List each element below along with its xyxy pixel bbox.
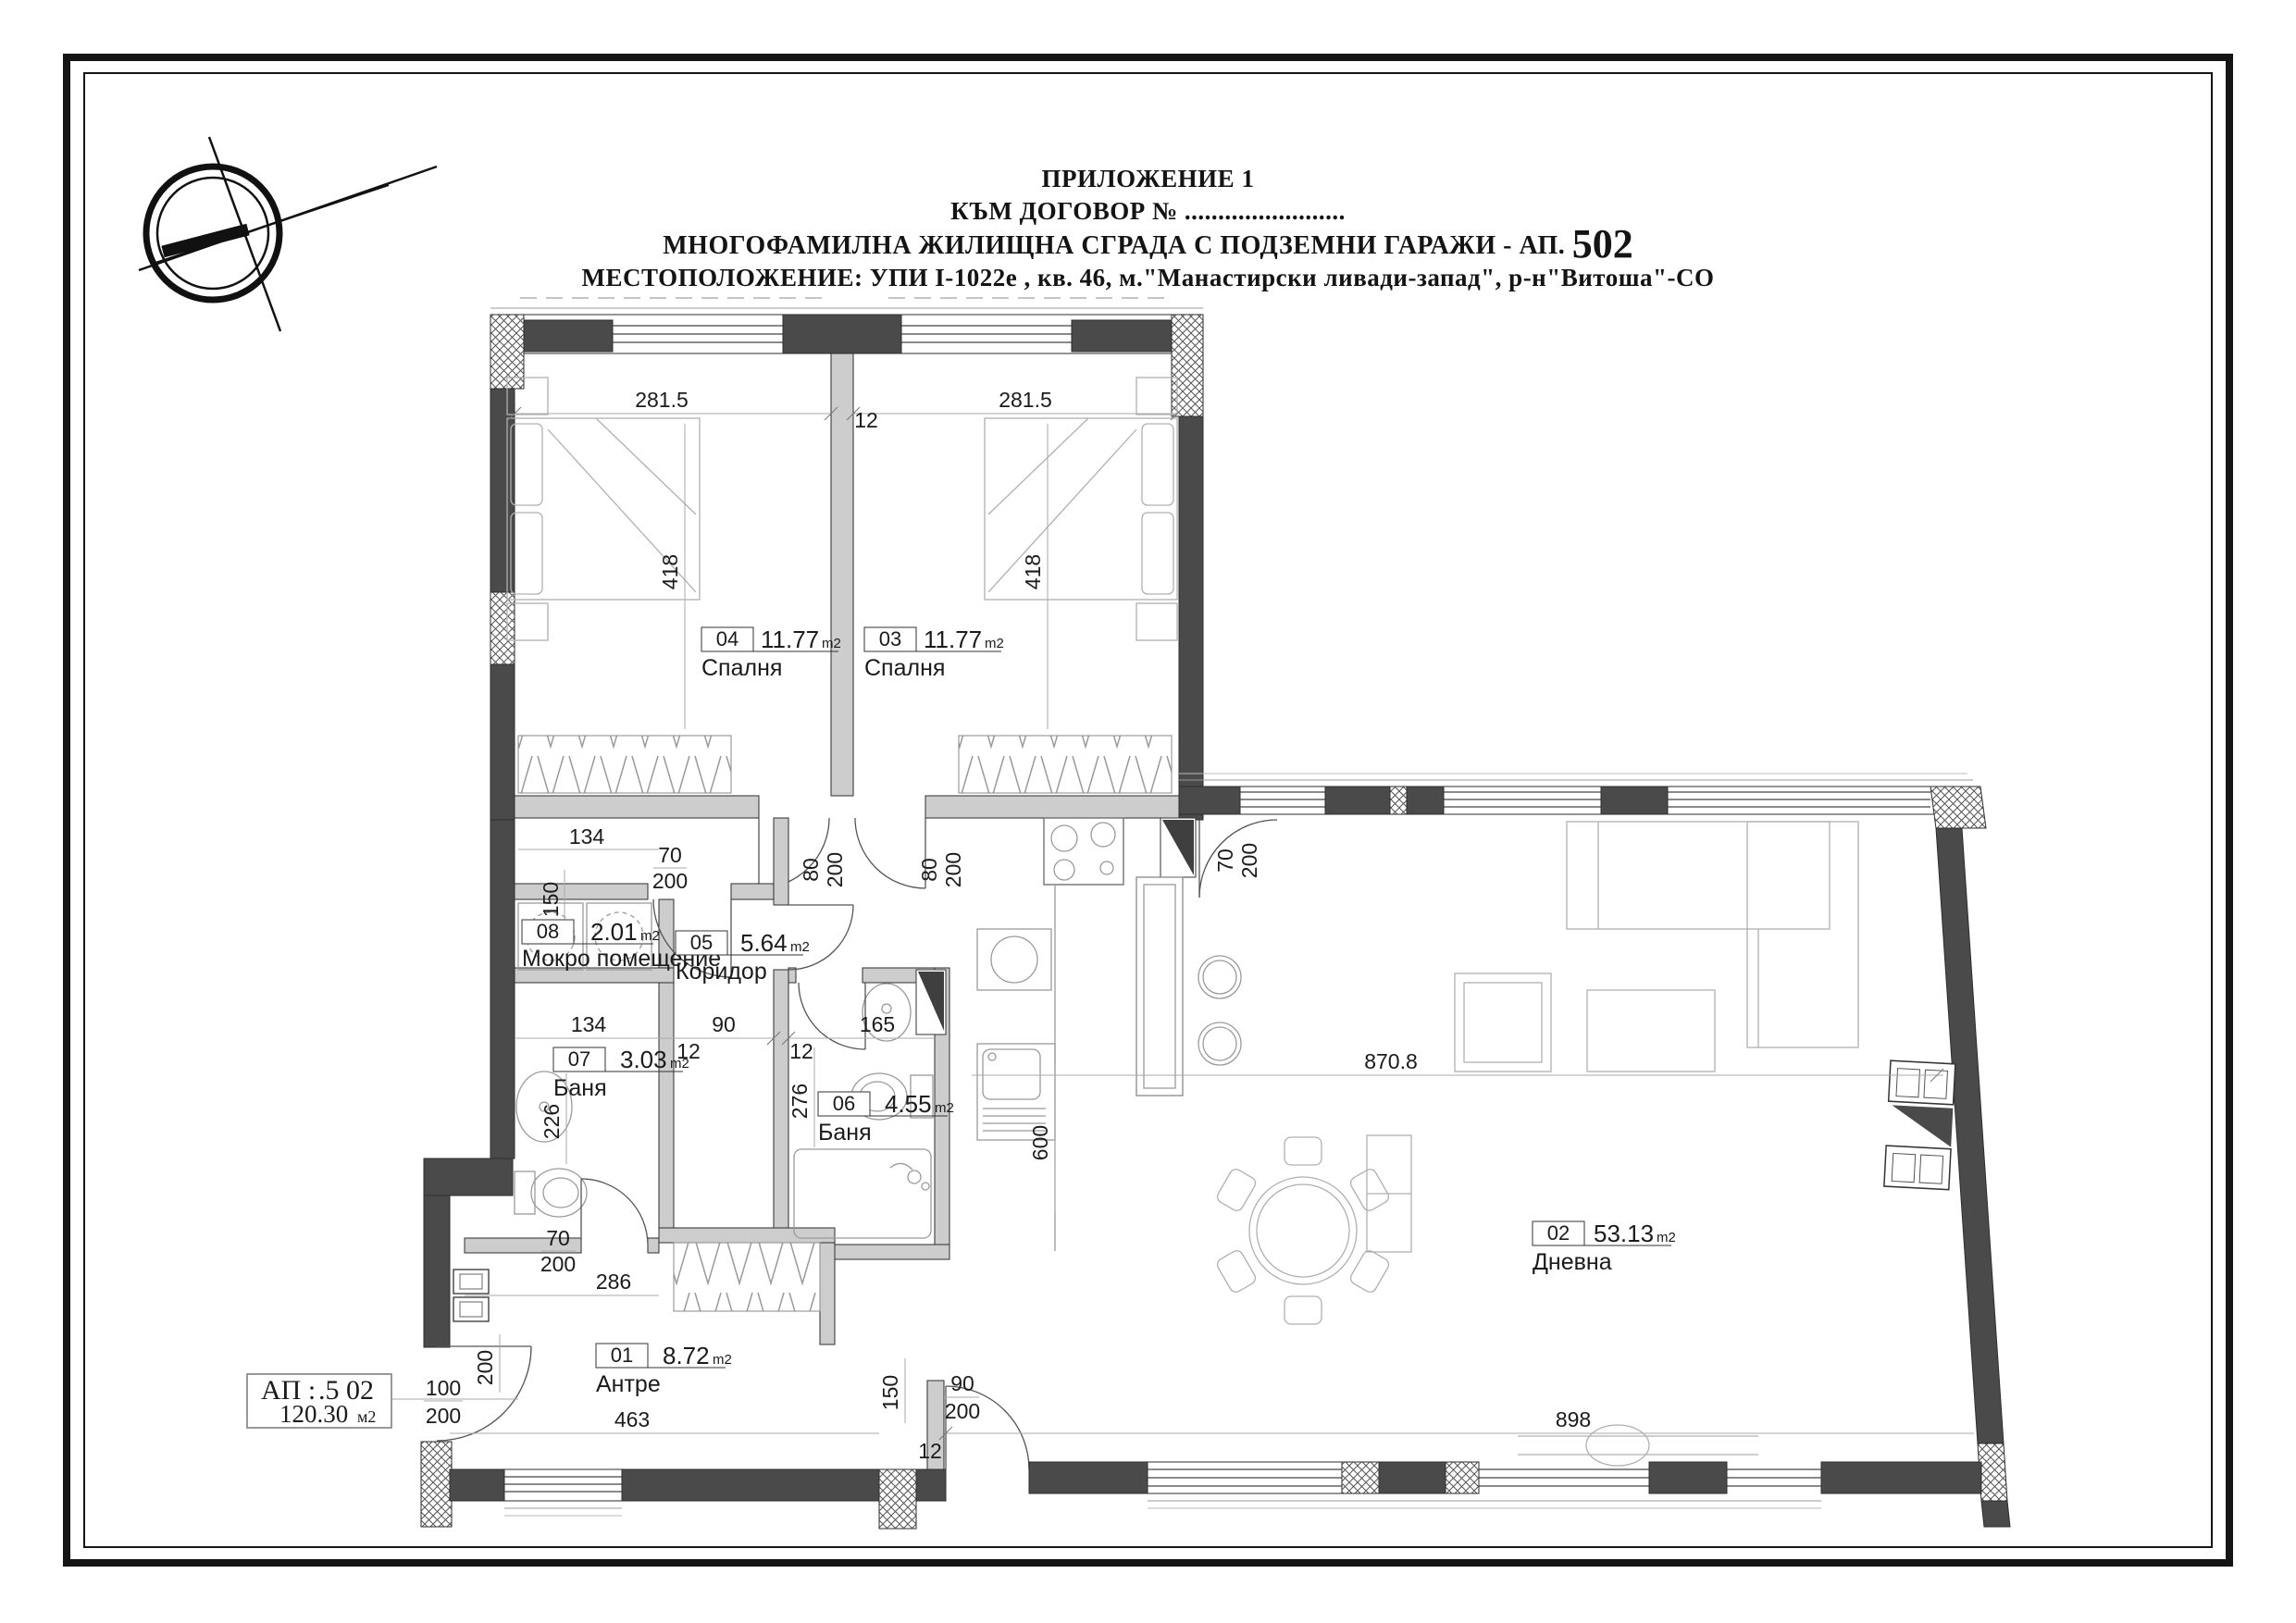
svg-text:01: 01 — [611, 1344, 633, 1367]
bed-room4 — [507, 378, 700, 640]
walls-middle — [421, 818, 949, 1527]
svg-text:07: 07 — [568, 1047, 590, 1071]
door-bath7 — [581, 1179, 648, 1245]
dim-lobby-150: 150 — [539, 882, 563, 917]
room-label-01: 01 8.72 m2 Антре — [596, 1342, 732, 1397]
dim-stub-12: 12 — [918, 1439, 942, 1463]
svg-text:2.01: 2.01 — [590, 918, 638, 946]
svg-text:53.13: 53.13 — [1594, 1220, 1654, 1247]
north-compass-icon — [139, 137, 437, 331]
svg-text:5.64: 5.64 — [740, 929, 788, 957]
dim-bed4-depth: 418 — [658, 554, 682, 589]
svg-text:03: 03 — [879, 627, 901, 650]
wardrobe-antre — [674, 1243, 820, 1311]
dim-bed3-width: 281.5 — [999, 388, 1052, 412]
dim-door-bed3: 80 200 — [917, 852, 965, 887]
room-label-03: 03 11.77 m2 Спалня — [864, 626, 1004, 681]
svg-text:02: 02 — [1547, 1221, 1570, 1245]
dim-entry-h: 200 — [426, 1404, 461, 1428]
dim-wall-12b: 12 — [789, 1039, 813, 1063]
dim-bath7-286: 286 — [596, 1270, 631, 1294]
shaft-bath6 — [916, 970, 946, 1035]
title-area-unit: м2 — [357, 1407, 376, 1426]
svg-text:Коридор: Коридор — [676, 959, 767, 985]
dim-bed4-width: 281.5 — [635, 388, 689, 412]
svg-text:Спалня: Спалня — [864, 655, 945, 681]
dim-livdoor-w: 90 — [950, 1371, 974, 1395]
svg-text:m2: m2 — [985, 636, 1004, 651]
svg-text:80: 80 — [799, 858, 823, 882]
dim-bath7-226: 226 — [540, 1104, 564, 1139]
daybed-right-wall — [1884, 1060, 1955, 1189]
dim-kitchen-door: 70 200 — [1213, 843, 1261, 878]
svg-text:m2: m2 — [670, 1056, 689, 1072]
svg-text:04: 04 — [716, 627, 738, 650]
dim-bath7-134: 134 — [571, 1012, 607, 1036]
svg-text:Дневна: Дневна — [1533, 1249, 1612, 1275]
dim-antre-463: 463 — [614, 1407, 650, 1431]
kitchen-fixtures — [977, 818, 1241, 1251]
dim-bath6-165: 165 — [860, 1012, 895, 1036]
wardrobe-bed3 — [959, 736, 1172, 793]
shaft-kitchen — [1160, 818, 1196, 877]
svg-text:11.77: 11.77 — [924, 626, 982, 653]
svg-text:m2: m2 — [713, 1352, 732, 1368]
svg-text:70: 70 — [1213, 849, 1237, 873]
svg-text:200: 200 — [1237, 843, 1261, 878]
floor-plan-svg: 281.5 12 281.5 418 418 80 200 80 200 134… — [0, 0, 2296, 1623]
svg-text:Спалня: Спалня — [701, 655, 782, 681]
svg-text:m2: m2 — [822, 636, 841, 651]
dim-bath6-276: 276 — [788, 1084, 812, 1119]
bed-room3 — [985, 378, 1177, 640]
drawing-sheet: ПРИЛОЖЕНИЕ 1 КЪМ ДОГОВОР № .............… — [0, 0, 2296, 1623]
dim-partition: 12 — [854, 408, 878, 432]
dining-set — [1215, 1135, 1411, 1324]
dim-bed3-depth: 418 — [1021, 554, 1045, 589]
svg-text:m2: m2 — [1657, 1230, 1676, 1245]
svg-text:8.72: 8.72 — [663, 1342, 710, 1369]
svg-text:4.55: 4.55 — [885, 1090, 932, 1118]
svg-text:06: 06 — [833, 1092, 855, 1115]
svg-text:m2: m2 — [640, 928, 660, 944]
dim-living-898: 898 — [1556, 1407, 1591, 1431]
dim-bath7door-h: 200 — [540, 1252, 576, 1276]
svg-text:m2: m2 — [790, 939, 810, 955]
svg-text:3.03: 3.03 — [620, 1046, 667, 1073]
svg-text:05: 05 — [690, 931, 713, 954]
svg-text:Антре: Антре — [596, 1371, 661, 1397]
dim-kitchen-600: 600 — [1028, 1125, 1052, 1160]
dim-door-bed4: 80 200 — [799, 852, 847, 887]
dim-lobby-134: 134 — [569, 824, 605, 849]
dim-living-870: 870.8 — [1364, 1049, 1418, 1073]
svg-text:Баня: Баня — [818, 1120, 872, 1146]
svg-text:Баня: Баня — [553, 1075, 607, 1101]
door-bed3 — [855, 818, 925, 888]
svg-text:200: 200 — [823, 852, 847, 887]
dim-livdoor-h: 200 — [945, 1399, 980, 1423]
dim-antre-200: 200 — [473, 1350, 497, 1385]
walls-bottom — [450, 1462, 1981, 1529]
dim-entry-w: 100 — [426, 1376, 461, 1400]
room-label-02: 02 53.13 m2 Дневна — [1533, 1220, 1676, 1275]
svg-text:80: 80 — [917, 858, 941, 882]
door-corridor-kitchen — [788, 905, 853, 970]
svg-text:08: 08 — [537, 920, 559, 943]
wardrobe-bed4 — [518, 736, 731, 793]
svg-text:11.77: 11.77 — [761, 626, 819, 653]
dim-antre-150: 150 — [878, 1375, 902, 1410]
room-label-06: 06 4.55 m2 Баня — [818, 1090, 954, 1146]
dim-corridor-90: 90 — [712, 1012, 736, 1036]
svg-text:m2: m2 — [935, 1100, 954, 1116]
living-furniture — [1455, 822, 1858, 1466]
dim-bath7door-w: 70 — [546, 1226, 570, 1250]
room-label-04: 04 11.77 m2 Спалня — [701, 626, 841, 681]
title-area-value: 120.30 — [279, 1400, 348, 1428]
dim-wetdoor-h: 200 — [652, 869, 688, 893]
svg-text:200: 200 — [941, 852, 965, 887]
dim-wetdoor-w: 70 — [658, 843, 682, 867]
